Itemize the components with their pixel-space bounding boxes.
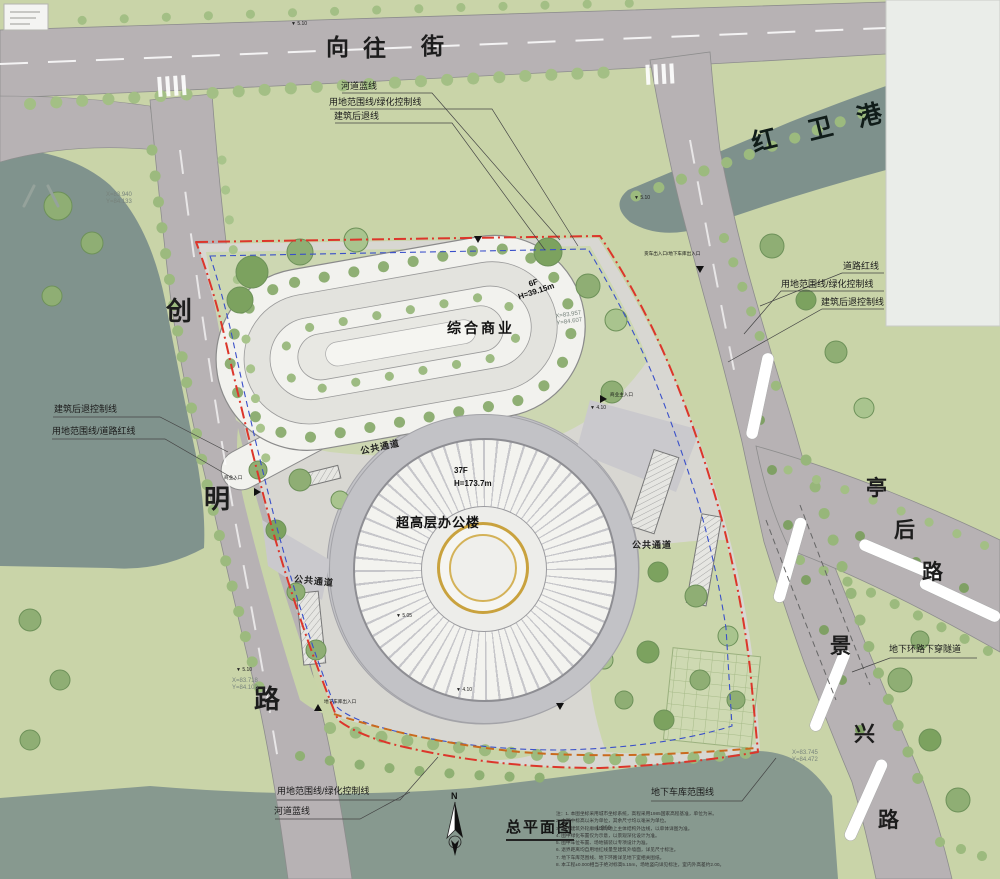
annotation-left-setback: 建筑后退控制线 [54, 405, 117, 414]
tower-floors-height: 37F H=173.7m [454, 466, 492, 488]
note-line: 5. 图中车位布置、场地铺装以专项设计为准。 [556, 839, 856, 846]
street-xiangwang-char2: 往 [363, 37, 386, 60]
notes-block: 注：1. 本图坐标采用城市坐标系统，高程采用1985国家高程基准，单位为米。 2… [556, 810, 856, 868]
note-line: 6. 退界距离均自用地红线量至建筑外墙面，详见尺寸标注。 [556, 846, 856, 853]
annotation-bottomleft-river: 河道蓝线 [274, 807, 310, 816]
annotation-bottomleft-greenline: 用地范围线/绿化控制线 [277, 787, 370, 796]
west-entrance-marker-icon [254, 483, 261, 501]
garage-entrance-label: 地下车库出入口 [324, 700, 356, 705]
spot-elevation: ▼ 5.10 [291, 22, 307, 27]
garden-grid [663, 648, 760, 749]
tower-height: H=173.7m [454, 479, 492, 488]
spot-elevation: ▼ 5.10 [634, 196, 650, 201]
truck-entrance-label: 货车出入口/地下车库出入口 [644, 252, 700, 257]
tower-floors: 37F [454, 466, 492, 475]
street-jingxing-char2: 兴 [854, 724, 875, 745]
blank-panel [886, 0, 1000, 326]
street-jingxing-char3: 路 [878, 810, 899, 831]
coordinate-label-nw: X=83.940 Y=84.133 [106, 192, 132, 206]
north-label: N [451, 791, 458, 801]
street-tinghou-char1: 亭 [866, 478, 887, 499]
note-line: 注：1. 本图坐标采用城市坐标系统，高程采用1985国家高程基准，单位为米。 [556, 810, 856, 817]
spot-elevation: ▼ 5.10 [236, 668, 252, 673]
street-chuangming-char1: 创 [166, 298, 192, 324]
street-tinghou-char3: 路 [922, 562, 943, 583]
annotation-underpass: 地下环路下穿隧道 [889, 645, 961, 654]
annotation-garage-extent: 地下车库范围线 [651, 788, 714, 797]
note-line: 7. 地下车库范围线、地下环路详见地下室相关图纸。 [556, 854, 856, 861]
annotation-right-setback: 建筑后退控制线 [821, 298, 884, 307]
main-entrance-label: 商业主入口 [610, 393, 633, 398]
annotation-right-redline: 道路红线 [843, 262, 879, 271]
annotation-top-setback: 建筑后退线 [334, 112, 379, 121]
legend-stamp [4, 4, 48, 30]
public-passage-label-2: 公共通道 [632, 538, 672, 551]
coord-y: Y=84.472 [792, 757, 818, 764]
coordinate-label-sw: X=83.718 Y=84.103 [232, 678, 258, 692]
annotation-right-greenline: 用地范围线/绿化控制线 [781, 280, 874, 289]
truck-entrance-marker-icon [696, 260, 704, 278]
street-tinghou-char2: 后 [894, 520, 915, 541]
note-line: 4. 图中绿化布置仅为示意，以景观深化设计为准。 [556, 832, 856, 839]
site-plan-canvas: 向 往 街 红 卫 港 创 明 路 亭 后 路 景 兴 路 综合商业 6F H=… [0, 0, 1000, 879]
annotation-top-greenline: 用地范围线/绿化控制线 [329, 98, 422, 107]
coord-y: Y=84.133 [106, 199, 132, 206]
coord-x: X=83.940 [106, 192, 132, 199]
annotation-top-river: 河道蓝线 [341, 82, 377, 91]
spot-elevation: ▼ 4.10 [590, 406, 606, 411]
note-line: 3. 图中建筑外轮廓线均为地上主体结构外边线，以单体详图为准。 [556, 825, 856, 832]
entrance-marker-icon [474, 230, 482, 248]
street-xiangwang-char3: 街 [421, 35, 444, 58]
note-line: 2. 本图中标高以米为单位，其余尺寸均以毫米为单位。 [556, 817, 856, 824]
coord-y: Y=84.103 [232, 685, 258, 692]
street-jingxing-char1: 景 [830, 636, 851, 657]
spot-elevation: ▼ 4.10 [456, 688, 472, 693]
note-line: 8. 本工程±0.000相当于绝对标高5.15m，场地竖向详见标注，室内外高差约… [556, 861, 856, 868]
spot-elevation: ▼ 5.05 [396, 614, 412, 619]
tower-inner-gold-ring [449, 534, 517, 602]
coord-x: X=83.745 [792, 750, 818, 757]
tower-label: 超高层办公楼 [396, 512, 480, 531]
south-entrance-marker-icon [556, 697, 564, 715]
street-chuangming-char2: 明 [204, 486, 230, 512]
street-xiangwang-char1: 向 [326, 36, 349, 59]
annotation-left-redline: 用地范围线/道路红线 [52, 427, 136, 436]
garage-entrance-marker-icon [314, 698, 322, 716]
coordinate-label-se: X=83.745 Y=84.472 [792, 750, 818, 764]
commercial-building-label: 综合商业 [447, 318, 515, 338]
coord-x: X=83.718 [232, 678, 258, 685]
west-entrance-label: 商业入口 [224, 476, 242, 481]
